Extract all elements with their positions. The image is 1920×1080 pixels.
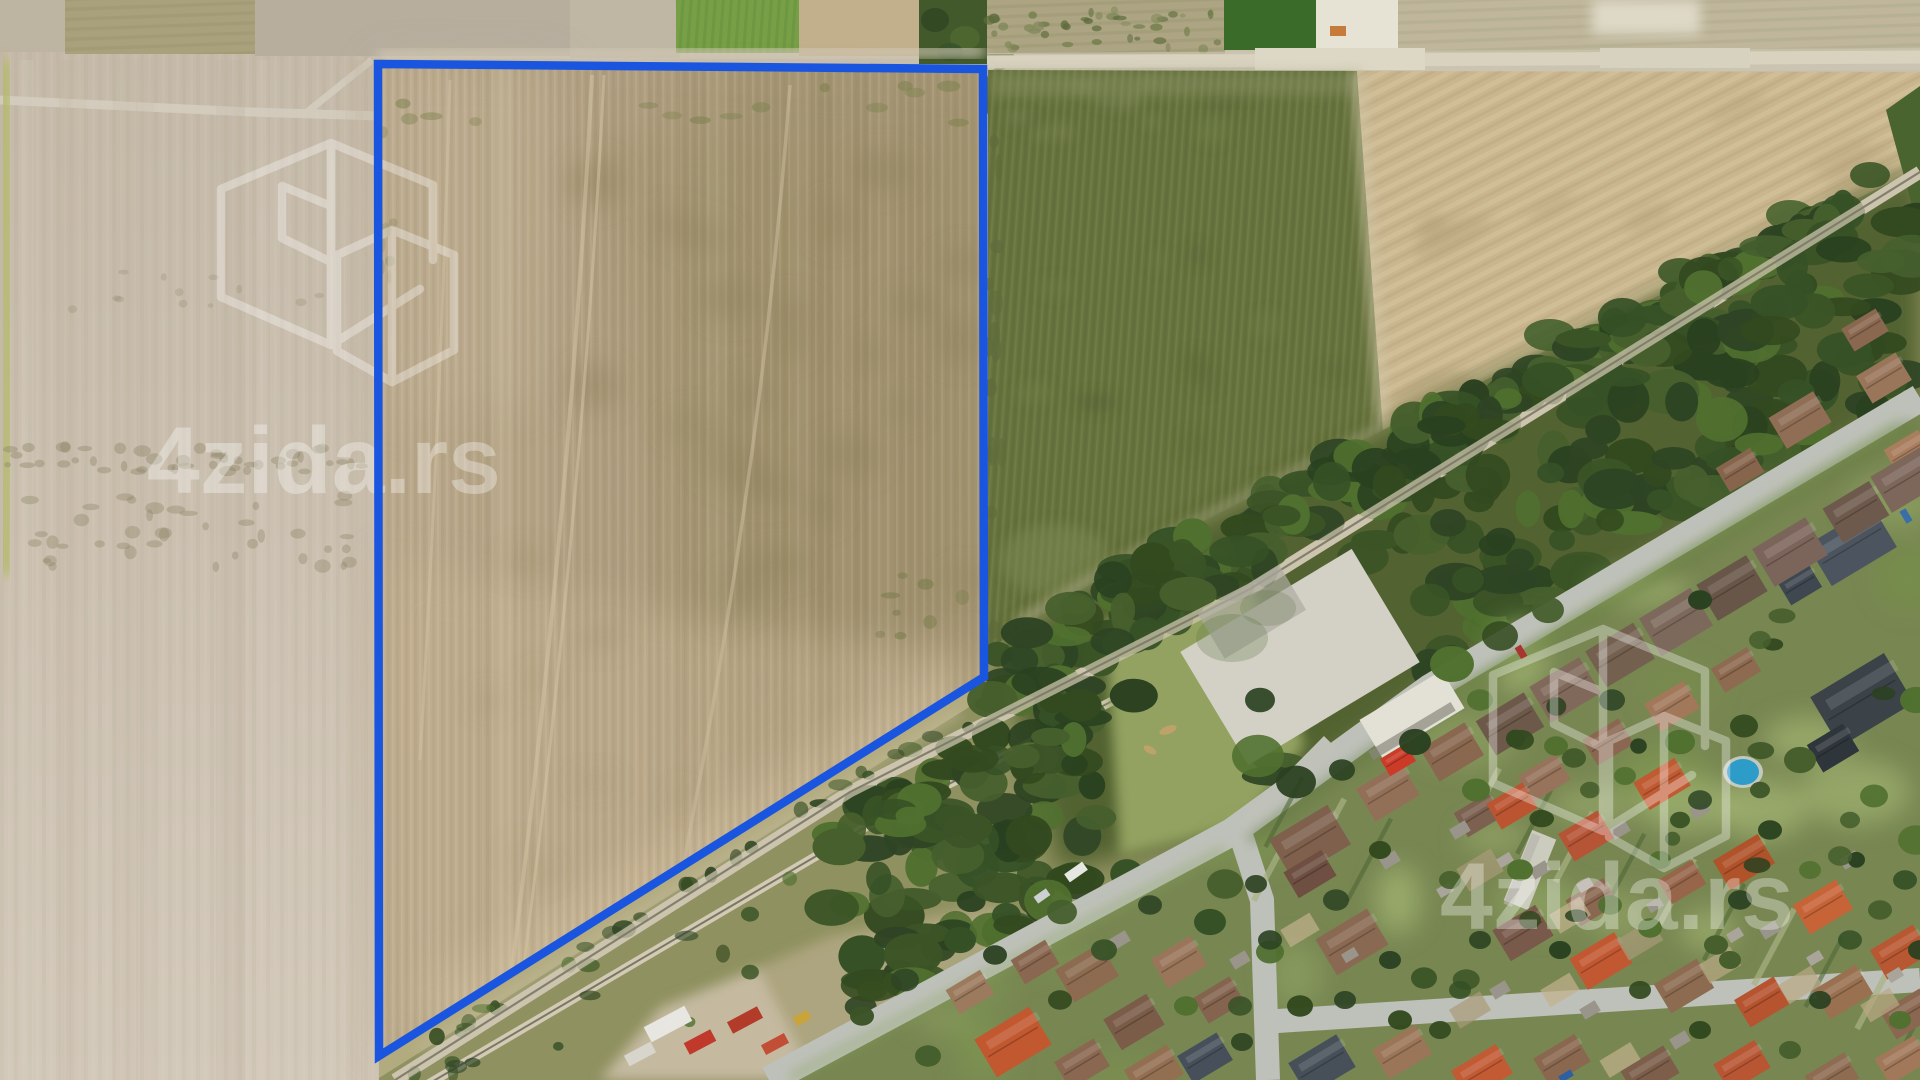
svg-text:4zida.rs: 4zida.rs <box>147 408 501 514</box>
svg-text:4zida.rs: 4zida.rs <box>1440 844 1794 950</box>
